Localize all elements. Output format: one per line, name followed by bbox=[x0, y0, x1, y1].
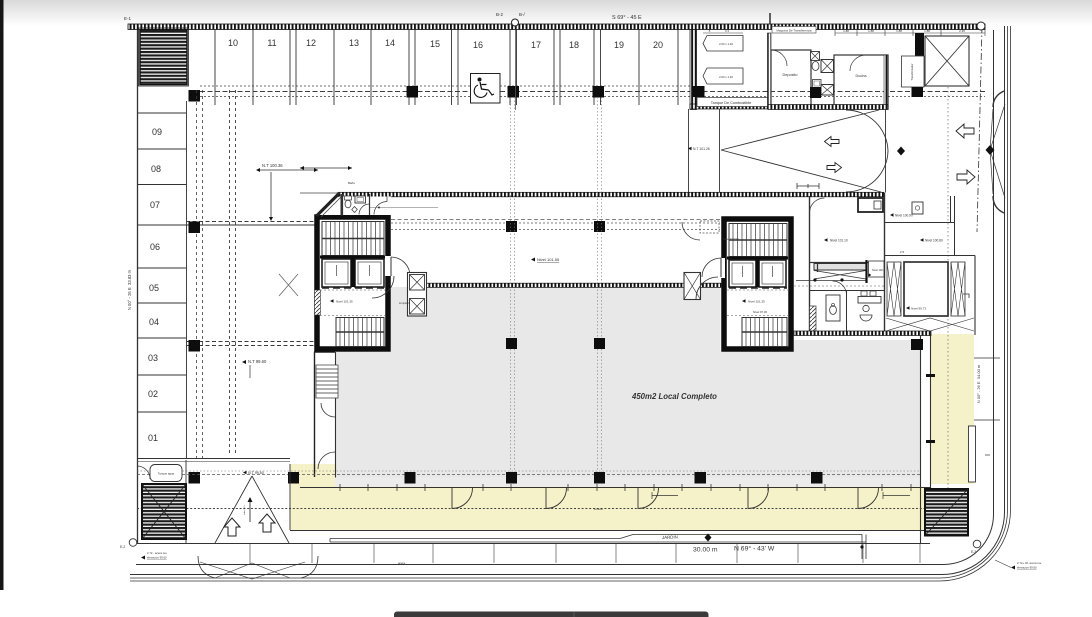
svg-text:1.88: 1.88 bbox=[896, 29, 902, 33]
svg-text:E-2: E-2 bbox=[120, 545, 125, 549]
svg-text:N.T 99.60: N.T 99.60 bbox=[248, 359, 267, 364]
svg-text:elevacion 99.60: elevacion 99.60 bbox=[147, 556, 167, 560]
svg-text:B-2: B-2 bbox=[496, 12, 504, 17]
svg-text:450m2 Local Completo: 450m2 Local Completo bbox=[631, 392, 717, 401]
svg-text:10: 10 bbox=[228, 38, 238, 48]
svg-text:JARDIN: JARDIN bbox=[662, 534, 678, 540]
svg-text:Nivel 101.35: Nivel 101.35 bbox=[748, 300, 765, 304]
svg-text:N.T 99.60: N.T 99.60 bbox=[248, 471, 264, 475]
svg-text:13: 13 bbox=[349, 38, 359, 48]
svg-text:18: 18 bbox=[569, 40, 579, 50]
svg-text:Nivel 101.55: Nivel 101.55 bbox=[537, 257, 560, 262]
svg-text:04: 04 bbox=[149, 317, 159, 327]
svg-text:08: 08 bbox=[151, 164, 161, 174]
svg-text:acera: acera bbox=[398, 561, 405, 565]
svg-text:Maquina De Transferencia: Maquina De Transferencia bbox=[776, 29, 812, 33]
svg-text:B-/: B-/ bbox=[519, 12, 526, 17]
svg-text:16: 16 bbox=[473, 40, 483, 50]
svg-text:02: 02 bbox=[148, 389, 158, 399]
svg-text:Ducha: Ducha bbox=[856, 74, 868, 78]
svg-text:2.72+.32, acera rue: 2.72+.32, acera rue bbox=[1017, 561, 1042, 565]
svg-text:N.T 101.26: N.T 101.26 bbox=[693, 147, 710, 151]
svg-text:elevacion 99.60: elevacion 99.60 bbox=[1017, 566, 1037, 570]
svg-text:Deposito: Deposito bbox=[783, 73, 798, 77]
svg-text:14: 14 bbox=[385, 38, 395, 48]
svg-text:1.88: 1.88 bbox=[868, 29, 874, 33]
svg-text:09: 09 bbox=[152, 127, 162, 137]
svg-text:Nivel 100.90: Nivel 100.90 bbox=[895, 214, 913, 218]
svg-text:Tanque agua: Tanque agua bbox=[158, 472, 175, 476]
svg-text:11: 11 bbox=[267, 38, 276, 48]
svg-text:Transformador: Transformador bbox=[910, 63, 914, 80]
svg-text:Nivel 100.5: Nivel 100.5 bbox=[872, 268, 886, 272]
svg-text:1.88: 1.88 bbox=[843, 29, 849, 33]
svg-text:Tanque De Combustible: Tanque De Combustible bbox=[711, 101, 752, 105]
svg-text:N 69° - 43' W: N 69° - 43' W bbox=[734, 545, 775, 553]
svg-text:20: 20 bbox=[653, 40, 663, 50]
svg-text:Nivel 97.30: Nivel 97.30 bbox=[753, 310, 767, 314]
svg-text:07: 07 bbox=[150, 200, 160, 210]
svg-text:N 00° - 26 E 33.83 m: N 00° - 26 E 33.83 m bbox=[127, 269, 132, 310]
svg-text:Nivel 101.10: Nivel 101.10 bbox=[830, 239, 848, 243]
svg-text:Baño: Baño bbox=[348, 181, 355, 185]
svg-text:30.00 m: 30.00 m bbox=[693, 547, 718, 554]
svg-text:E-3: E-3 bbox=[971, 550, 976, 554]
svg-text:Limpieza: Limpieza bbox=[399, 301, 411, 305]
svg-text:S 69° - 45 E: S 69° - 45 E bbox=[612, 15, 642, 21]
svg-text:N 00° - 26 E 34.00 m: N 00° - 26 E 34.00 m bbox=[976, 364, 981, 403]
svg-text:19: 19 bbox=[614, 40, 624, 50]
svg-text:N.T 100.36: N.T 100.36 bbox=[262, 163, 283, 168]
svg-text:2.60 x 1.20: 2.60 x 1.20 bbox=[719, 75, 733, 79]
svg-text:01: 01 bbox=[148, 433, 158, 443]
svg-text:Nivel 100.50: Nivel 100.50 bbox=[723, 237, 739, 241]
svg-text:vereda: vereda bbox=[594, 507, 603, 511]
svg-text:2.5: 2.5 bbox=[900, 250, 905, 254]
svg-text:2.72 - acera rue: 2.72 - acera rue bbox=[147, 551, 167, 555]
svg-text:E-1: E-1 bbox=[124, 16, 132, 21]
svg-text:Nivel 101.35: Nivel 101.35 bbox=[336, 300, 353, 304]
svg-text:12: 12 bbox=[306, 38, 316, 48]
svg-text:17: 17 bbox=[531, 40, 541, 50]
svg-text:2.35: 2.35 bbox=[959, 29, 965, 33]
svg-text:03: 03 bbox=[148, 353, 158, 363]
svg-text:2.60 x 1.20: 2.60 x 1.20 bbox=[719, 42, 733, 46]
svg-text:Nivel 99.73: Nivel 99.73 bbox=[911, 307, 926, 311]
svg-text:05: 05 bbox=[149, 283, 159, 293]
svg-text:15: 15 bbox=[430, 39, 440, 49]
svg-text:1.88: 1.88 bbox=[924, 29, 930, 33]
svg-text:06: 06 bbox=[150, 242, 160, 252]
svg-text:Nivel 100.80: Nivel 100.80 bbox=[925, 239, 943, 243]
svg-text:sube 15%: sube 15% bbox=[244, 505, 246, 515]
svg-text:3.3: 3.3 bbox=[725, 29, 729, 33]
